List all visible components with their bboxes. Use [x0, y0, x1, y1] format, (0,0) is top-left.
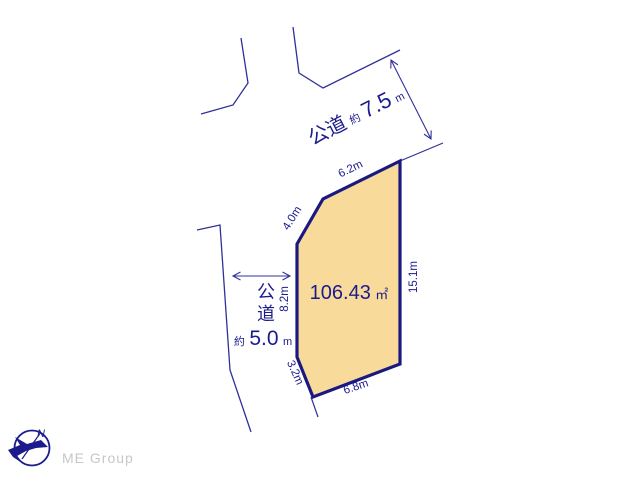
road-left-name-char2: 道 — [257, 304, 275, 324]
road-edge-top-left — [201, 38, 248, 114]
road-left-width: 5.0 — [249, 327, 278, 350]
road-left-name-char1: 公 — [257, 282, 275, 302]
road-edge-left — [197, 225, 251, 432]
plot-plan-canvas: 公道 約 7.5 m 公 道 約 5.0 m 6.2m 4.0m 8.2m 3.… — [0, 0, 640, 480]
compass-north-label: N — [37, 428, 45, 440]
side-label-top: 6.2m — [337, 158, 365, 180]
boundary-extension-line — [311, 397, 318, 417]
compass-icon: N — [8, 428, 50, 466]
road-top-approx: 約 — [347, 110, 363, 127]
road-top-name: 公道 — [304, 111, 350, 150]
parcel-area-unit: ㎡ — [375, 287, 388, 302]
road-left-approx: 約 — [234, 334, 245, 348]
road-top-label: 公道 約 7.5 m — [304, 81, 408, 151]
road-top-unit: m — [393, 90, 407, 105]
brand-logo-text: ME Group — [62, 450, 134, 466]
side-label-upper-left: 4.0m — [281, 204, 305, 232]
side-label-left: 8.2m — [279, 286, 291, 312]
compass-bird — [8, 437, 48, 463]
plot-plan: 公道 約 7.5 m 公 道 約 5.0 m 6.2m 4.0m 8.2m 3.… — [0, 0, 640, 480]
land-parcel — [297, 161, 400, 397]
side-label-right: 15.1m — [408, 261, 420, 293]
parcel-area-value: 106.43 — [310, 282, 371, 304]
road-edge-lower-right — [400, 143, 443, 161]
road-edge-top-right — [293, 27, 400, 88]
road-left-unit: m — [283, 336, 292, 348]
road-top-width: 7.5 — [357, 87, 396, 123]
road-left-width-label: 約 5.0 m — [234, 327, 292, 350]
